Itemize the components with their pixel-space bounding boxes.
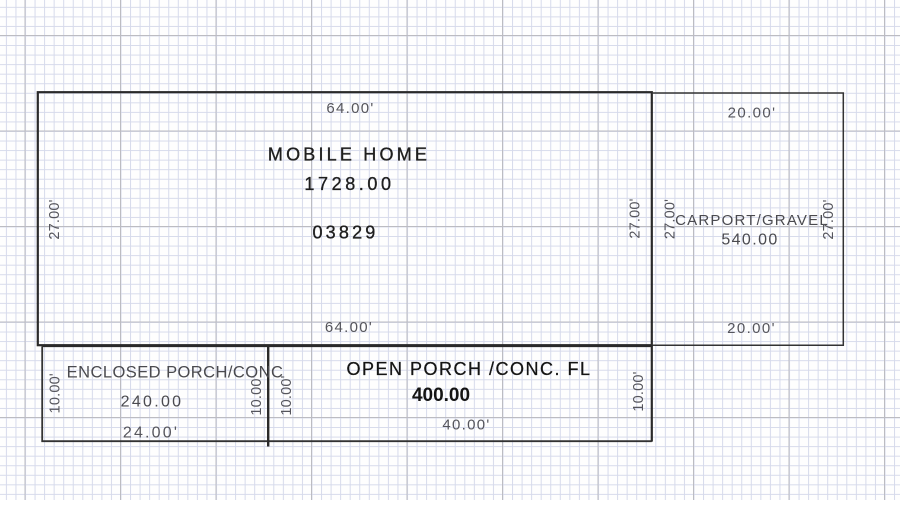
svg-text:10.00': 10.00' <box>631 371 647 411</box>
svg-text:20.00': 20.00' <box>728 105 777 122</box>
svg-text:400.00: 400.00 <box>412 385 470 406</box>
svg-text:10.00': 10.00' <box>48 373 64 413</box>
svg-text:MOBILE HOME: MOBILE HOME <box>268 144 430 164</box>
svg-text:64.00': 64.00' <box>326 100 374 117</box>
svg-text:64.00': 64.00' <box>325 319 373 336</box>
svg-text:10.00': 10.00' <box>279 375 295 415</box>
svg-text:OPEN PORCH /CONC. FL: OPEN PORCH /CONC. FL <box>346 359 591 379</box>
svg-text:03829: 03829 <box>312 222 378 242</box>
svg-text:27.00': 27.00' <box>627 198 643 238</box>
svg-text:540.00: 540.00 <box>721 232 778 249</box>
svg-text:240.00: 240.00 <box>121 394 184 411</box>
svg-text:CARPORT/GRAVEL: CARPORT/GRAVEL <box>675 212 829 229</box>
svg-text:10.00': 10.00' <box>249 375 265 415</box>
svg-text:20.00': 20.00' <box>727 320 776 337</box>
svg-text:40.00': 40.00' <box>442 417 490 434</box>
svg-text:24.00': 24.00' <box>123 424 179 441</box>
svg-text:27.00': 27.00' <box>47 199 63 239</box>
svg-text:27.00': 27.00' <box>821 199 837 239</box>
svg-text:1728.00: 1728.00 <box>304 174 394 194</box>
